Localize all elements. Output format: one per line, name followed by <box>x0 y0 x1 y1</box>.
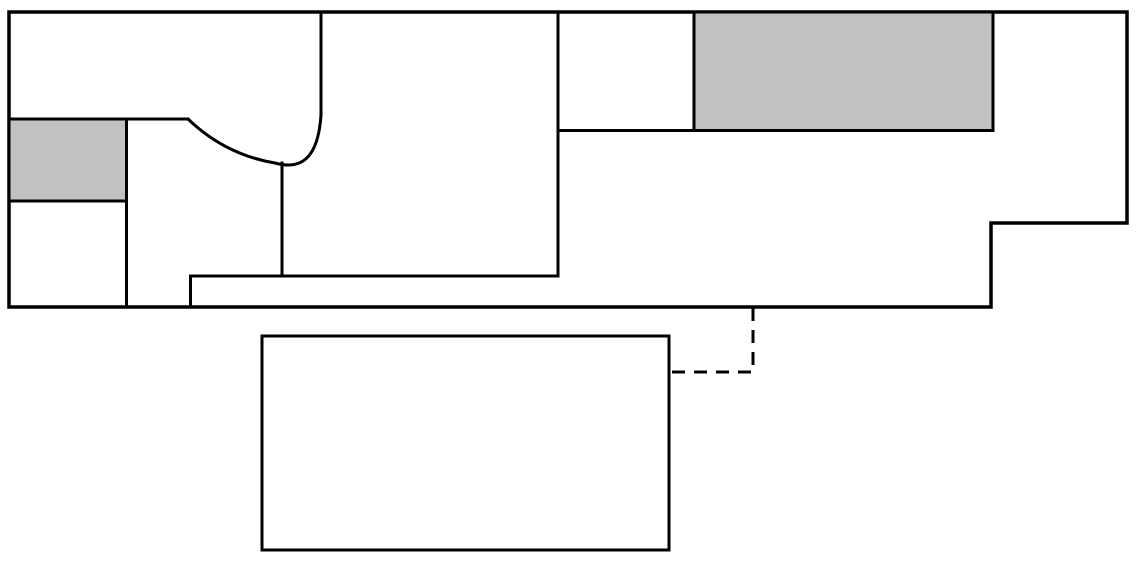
dashed-connector <box>671 308 753 372</box>
floor-plan-diagram <box>0 0 1138 564</box>
floor-plan-svg <box>0 0 1138 564</box>
detached-room <box>262 336 669 550</box>
shaded-room-left <box>9 119 127 201</box>
shaded-room-right <box>694 12 993 131</box>
